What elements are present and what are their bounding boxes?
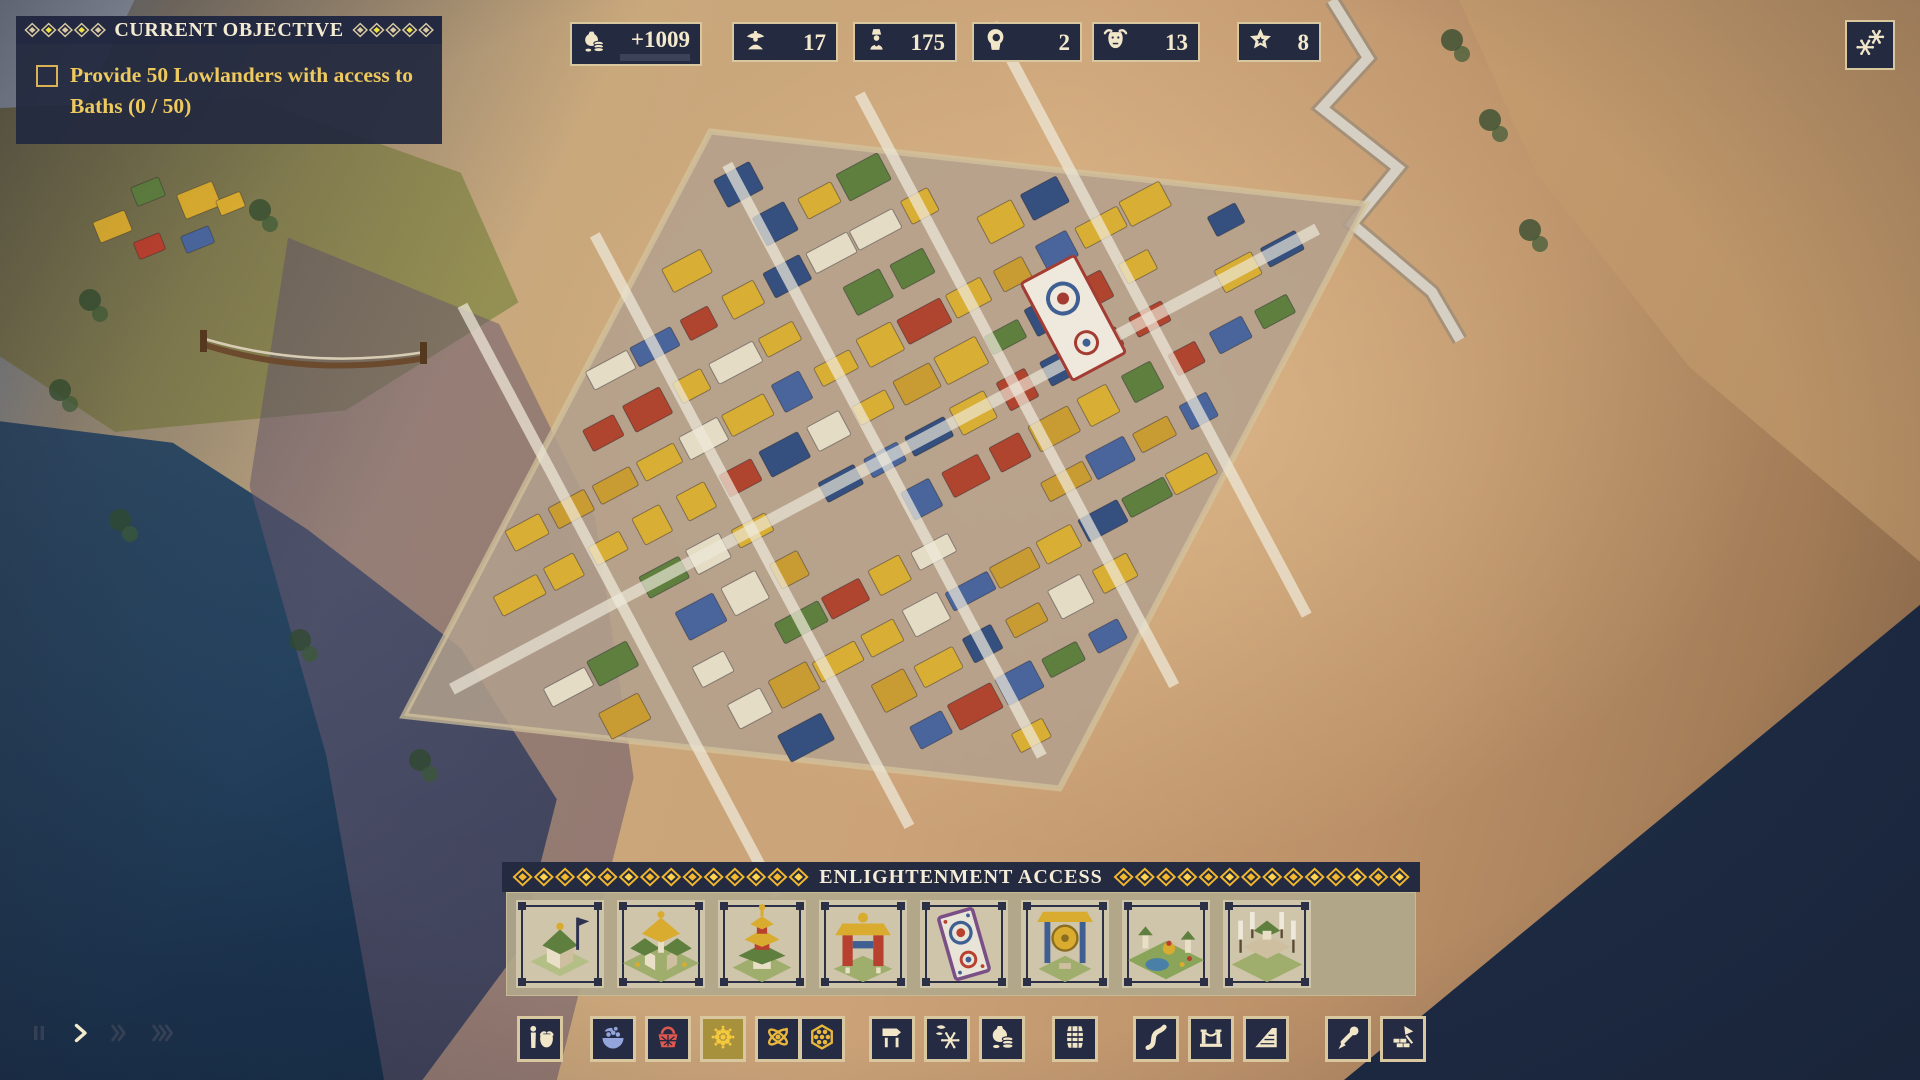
ornament-pattern-right [1113, 866, 1410, 888]
toolbar-frame [1325, 1016, 1371, 1062]
toolbar-group-5 [1325, 1016, 1426, 1062]
objective-checkbox [36, 65, 58, 87]
toolbar-frame [517, 1016, 563, 1062]
build-category-snowflake-leaf[interactable] [927, 1019, 967, 1059]
objective-panel-title: CURRENT OBJECTIVE [114, 19, 343, 42]
build-category-mandala-flower[interactable] [703, 1019, 743, 1059]
resource-value: 8 [1280, 31, 1309, 54]
resource-value: 2 [1015, 31, 1070, 54]
snowflakes-icon [1854, 27, 1886, 64]
resource-counter-straw-hat-worker[interactable]: 17 [732, 22, 838, 62]
resource-bar: +1009 17 1752 138 [570, 22, 1321, 66]
forage-bowl-icon [598, 1022, 628, 1057]
toolbar-group-2 [869, 1016, 1025, 1062]
build-category-ramp[interactable] [1246, 1019, 1286, 1059]
ornament-pattern-left [24, 20, 106, 40]
toolbar-frame [700, 1016, 746, 1062]
snowflake-leaf-icon [932, 1022, 962, 1057]
toolbar-frame [1052, 1016, 1098, 1062]
objective-list: Provide 50 Lowlanders with access to Bat… [16, 44, 442, 144]
toolbar-frame [1380, 1016, 1426, 1062]
road-icon [1141, 1022, 1171, 1057]
toolbar-frame [755, 1016, 845, 1062]
bridge-icon [1196, 1022, 1226, 1057]
star-icon [1247, 26, 1274, 58]
build-category-signpost[interactable] [872, 1019, 912, 1059]
atom-icon [763, 1022, 793, 1057]
thumbnail-ceremonial-gate[interactable] [819, 900, 907, 988]
toolbar-frame [1188, 1016, 1234, 1062]
basket-icon [653, 1022, 683, 1057]
shrine-illustration [516, 900, 604, 988]
resource-counter-monk[interactable]: 175 [853, 22, 957, 62]
mandala-flower-icon [708, 1022, 738, 1057]
villager-yak-icon [525, 1022, 555, 1057]
build-category-barrel[interactable] [1055, 1019, 1095, 1059]
pagoda-temple-illustration [718, 900, 806, 988]
banner-platform-illustration [1223, 900, 1311, 988]
toolbar-frame [1243, 1016, 1289, 1062]
enlightenment-access-banner: ENLIGHTENMENT ACCESS [502, 862, 1420, 892]
toolbar-group-3 [1052, 1016, 1098, 1062]
build-category-demolish[interactable] [1383, 1019, 1423, 1059]
build-toolbar [517, 1016, 1426, 1062]
toolbar-group-1 [590, 1016, 845, 1062]
resource-counter-star[interactable]: 8 [1237, 22, 1321, 62]
ramp-icon [1251, 1022, 1281, 1057]
ceremonial-gate-illustration [819, 900, 907, 988]
game-screen: { "objective_panel": { "title": "CURRENT… [0, 0, 1920, 1080]
build-category-coin-purse[interactable] [982, 1019, 1022, 1059]
thumbnail-gong[interactable] [1021, 900, 1109, 988]
ornament-pattern-left [512, 866, 809, 888]
play-icon [68, 1021, 92, 1050]
hex-cluster-icon [807, 1022, 837, 1057]
sand-mandala-illustration [920, 900, 1008, 988]
barrel-icon [1060, 1022, 1090, 1057]
build-category-hex-cluster[interactable] [802, 1019, 842, 1059]
objective-text: Provide 50 Lowlanders with access to Bat… [70, 60, 424, 126]
demolish-icon [1388, 1022, 1418, 1057]
toolbar-frame [979, 1016, 1025, 1062]
build-category-road[interactable] [1136, 1019, 1176, 1059]
build-category-eyedropper[interactable] [1328, 1019, 1368, 1059]
build-category-atom[interactable] [758, 1019, 798, 1059]
yak-icon [1102, 26, 1129, 58]
resource-counter-yak[interactable]: 13 [1092, 22, 1200, 62]
thumbnail-banner-platform[interactable] [1223, 900, 1311, 988]
toolbar-group-4 [1133, 1016, 1289, 1062]
toolbar-frame [924, 1016, 970, 1062]
toolbar-frame [590, 1016, 636, 1062]
gong-illustration [1021, 900, 1109, 988]
snow-overlay-button[interactable] [1845, 20, 1895, 70]
resource-counter-hermit[interactable]: 2 [972, 22, 1082, 62]
build-category-villager-yak[interactable] [520, 1019, 560, 1059]
toolbar-frame [869, 1016, 915, 1062]
build-category-bridge[interactable] [1191, 1019, 1231, 1059]
resource-value: +1009 [631, 28, 690, 51]
straw-hat-worker-icon [742, 26, 769, 58]
objective-panel-header: CURRENT OBJECTIVE [16, 16, 442, 44]
resource-value: 17 [775, 31, 826, 54]
objective-panel: CURRENT OBJECTIVE Provide 50 Lowlanders … [16, 16, 442, 144]
enlightenment-thumbnail-strip [506, 892, 1416, 996]
thumbnail-garden-plaza[interactable] [1122, 900, 1210, 988]
fast-forward-icon [109, 1021, 133, 1050]
ornament-pattern-right [352, 20, 434, 40]
resource-value: 13 [1135, 31, 1188, 54]
fastest-forward-icon [150, 1021, 174, 1050]
resource-counter-coin-purse[interactable]: +1009 [570, 22, 702, 66]
thumbnail-sand-mandala[interactable] [920, 900, 1008, 988]
play-button[interactable] [67, 1022, 93, 1048]
coin-purse-icon [987, 1022, 1017, 1057]
toolbar-group-0 [517, 1016, 563, 1062]
garden-plaza-illustration [1122, 900, 1210, 988]
eyedropper-icon [1333, 1022, 1363, 1057]
thumbnail-shrine[interactable] [516, 900, 604, 988]
game-speed-controls [26, 1022, 175, 1048]
temple-complex-illustration [617, 900, 705, 988]
pause-icon [27, 1021, 51, 1050]
thumbnail-temple-complex[interactable] [617, 900, 705, 988]
build-category-forage-bowl[interactable] [593, 1019, 633, 1059]
signpost-icon [877, 1022, 907, 1057]
pause-button[interactable] [26, 1022, 52, 1048]
hermit-icon [982, 26, 1009, 58]
enlightenment-access-title: ENLIGHTENMENT ACCESS [819, 866, 1103, 889]
monk-icon [863, 26, 890, 58]
toolbar-frame [1133, 1016, 1179, 1062]
resource-progress-track [620, 54, 690, 61]
thumbnail-pagoda-temple[interactable] [718, 900, 806, 988]
toolbar-frame [645, 1016, 691, 1062]
fastest-forward-button[interactable] [149, 1022, 175, 1048]
build-category-basket[interactable] [648, 1019, 688, 1059]
resource-value: 175 [896, 31, 945, 54]
fast-forward-button[interactable] [108, 1022, 134, 1048]
coin-purse-icon [580, 28, 607, 60]
